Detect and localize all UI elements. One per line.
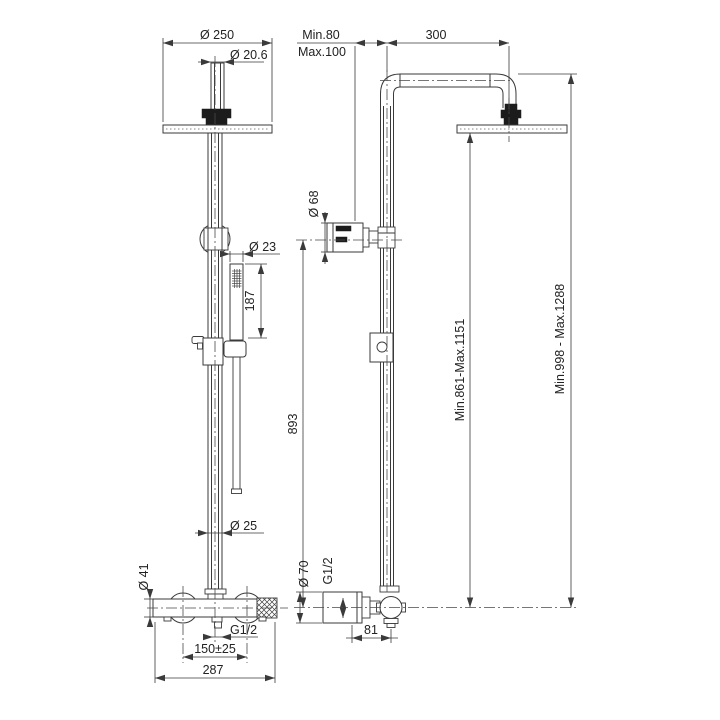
dim-valve-depth-diameter: Ø 70 <box>296 560 322 623</box>
handshower-length-label: 187 <box>243 291 257 312</box>
valve-side <box>323 586 406 628</box>
riser-height-label: 893 <box>286 414 300 435</box>
dim-head-height-range: Min.861-Max.1151 <box>453 133 473 608</box>
valve-foot-left <box>164 617 171 621</box>
hand-shower-holder <box>224 341 246 357</box>
inlet-thread-label: G1/2 <box>321 557 335 584</box>
top-pipe <box>211 63 224 110</box>
head-height-range-label: Min.861-Max.1151 <box>453 319 467 422</box>
dim-total-height-range: Min.998 - Max.1288 <box>518 74 577 608</box>
wall-bracket-knob <box>327 223 395 252</box>
dim-handshower-length: 187 <box>243 264 267 338</box>
dim-riser-diameter: Ø 25 <box>195 519 264 536</box>
head-mount <box>202 109 231 125</box>
hand-shower-wand <box>233 357 240 489</box>
overall-width-label: 287 <box>203 663 224 677</box>
head-diameter-label: Ø 250 <box>200 28 234 42</box>
hand-shower <box>230 264 243 494</box>
wall-bracket-collar <box>204 228 228 250</box>
wall-distance-min-label: Min.80 <box>302 28 340 42</box>
side-view-dimensions: Min.80 Max.100 300 Ø 68 893 <box>286 28 577 643</box>
valve-depth-diameter-label: Ø 70 <box>297 560 311 587</box>
riser-nut <box>205 589 226 594</box>
slider-lever <box>192 337 204 344</box>
pipe-top-diameter-label: Ø 20.6 <box>230 48 268 62</box>
dim-bracket-diameter: Ø 68 <box>307 190 329 264</box>
side-view <box>323 74 567 628</box>
technical-drawing-page: Ø 250 Ø 20.6 Ø 23 187 <box>0 0 720 720</box>
riser-connection-nut <box>380 586 399 592</box>
side-head-mount <box>501 104 521 126</box>
side-shower-head-disc <box>457 125 567 133</box>
bracket-diameter-label: Ø 68 <box>307 190 321 217</box>
side-holder <box>370 333 393 362</box>
inlet-spacing-label: 150±25 <box>194 642 236 656</box>
valve-offset-label: 81 <box>364 623 378 637</box>
shower-arm <box>381 74 517 108</box>
outlet-thread-label: G1/2 <box>230 623 257 637</box>
riser-diameter-label: Ø 25 <box>230 519 257 533</box>
outlet-fitting <box>212 617 222 622</box>
dim-outlet-thread: G1/2 <box>203 623 258 640</box>
handshower-diameter-label: Ø 23 <box>249 240 276 254</box>
dim-riser-height: 893 <box>286 240 306 608</box>
dim-pipe-top-diameter: Ø 20.6 <box>198 48 268 65</box>
wand-end-cap <box>232 489 242 494</box>
shower-system-technical-drawing: Ø 250 Ø 20.6 Ø 23 187 <box>0 0 720 720</box>
dim-valve-diameter: Ø 41 <box>137 563 154 627</box>
arm-length-label: 300 <box>426 28 447 42</box>
shower-head-disc <box>163 125 272 133</box>
total-height-range-label: Min.998 - Max.1288 <box>553 284 567 395</box>
dim-inlet-spacing: 150±25 <box>183 642 247 660</box>
dim-arm-length: 300 <box>387 28 509 46</box>
valve-diameter-label: Ø 41 <box>137 563 151 590</box>
valve-foot-right <box>259 617 266 621</box>
wall-distance-max-label: Max.100 <box>298 45 346 59</box>
pipe-clamp <box>378 227 395 248</box>
